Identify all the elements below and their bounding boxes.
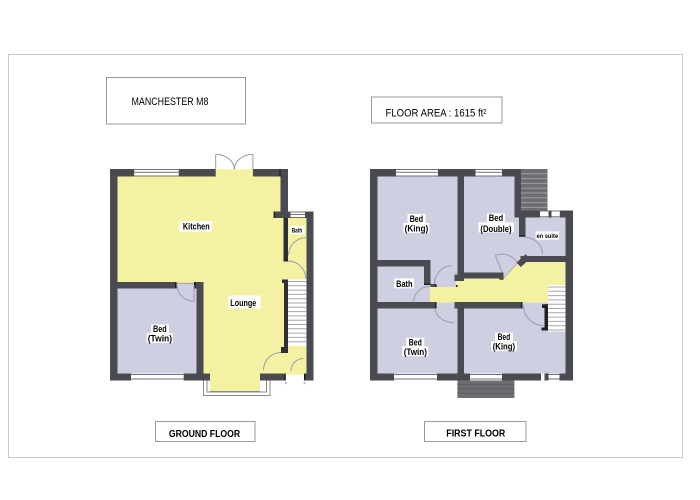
svg-text:(King): (King): [493, 342, 515, 352]
svg-text:(Twin): (Twin): [404, 347, 427, 357]
svg-text:(Double): (Double): [480, 224, 511, 234]
svg-text:GROUND FLOOR: GROUND FLOOR: [169, 429, 241, 440]
svg-text:Bath: Bath: [292, 228, 303, 234]
svg-text:(Twin): (Twin): [148, 334, 172, 344]
svg-text:Bed: Bed: [489, 213, 503, 223]
svg-text:MANCHESTER M8: MANCHESTER M8: [132, 96, 209, 108]
svg-text:(King): (King): [405, 224, 429, 234]
svg-text:Lounge: Lounge: [230, 298, 256, 308]
svg-text:FLOOR AREA : 1615 ft²: FLOOR AREA : 1615 ft²: [386, 108, 487, 120]
svg-text:Bed: Bed: [153, 324, 167, 334]
svg-text:FIRST FLOOR: FIRST FLOOR: [446, 429, 506, 440]
svg-text:Bath: Bath: [396, 279, 412, 289]
svg-text:Bed: Bed: [410, 214, 423, 224]
svg-text:en suite: en suite: [536, 233, 558, 240]
svg-text:Kitchen: Kitchen: [183, 221, 210, 231]
